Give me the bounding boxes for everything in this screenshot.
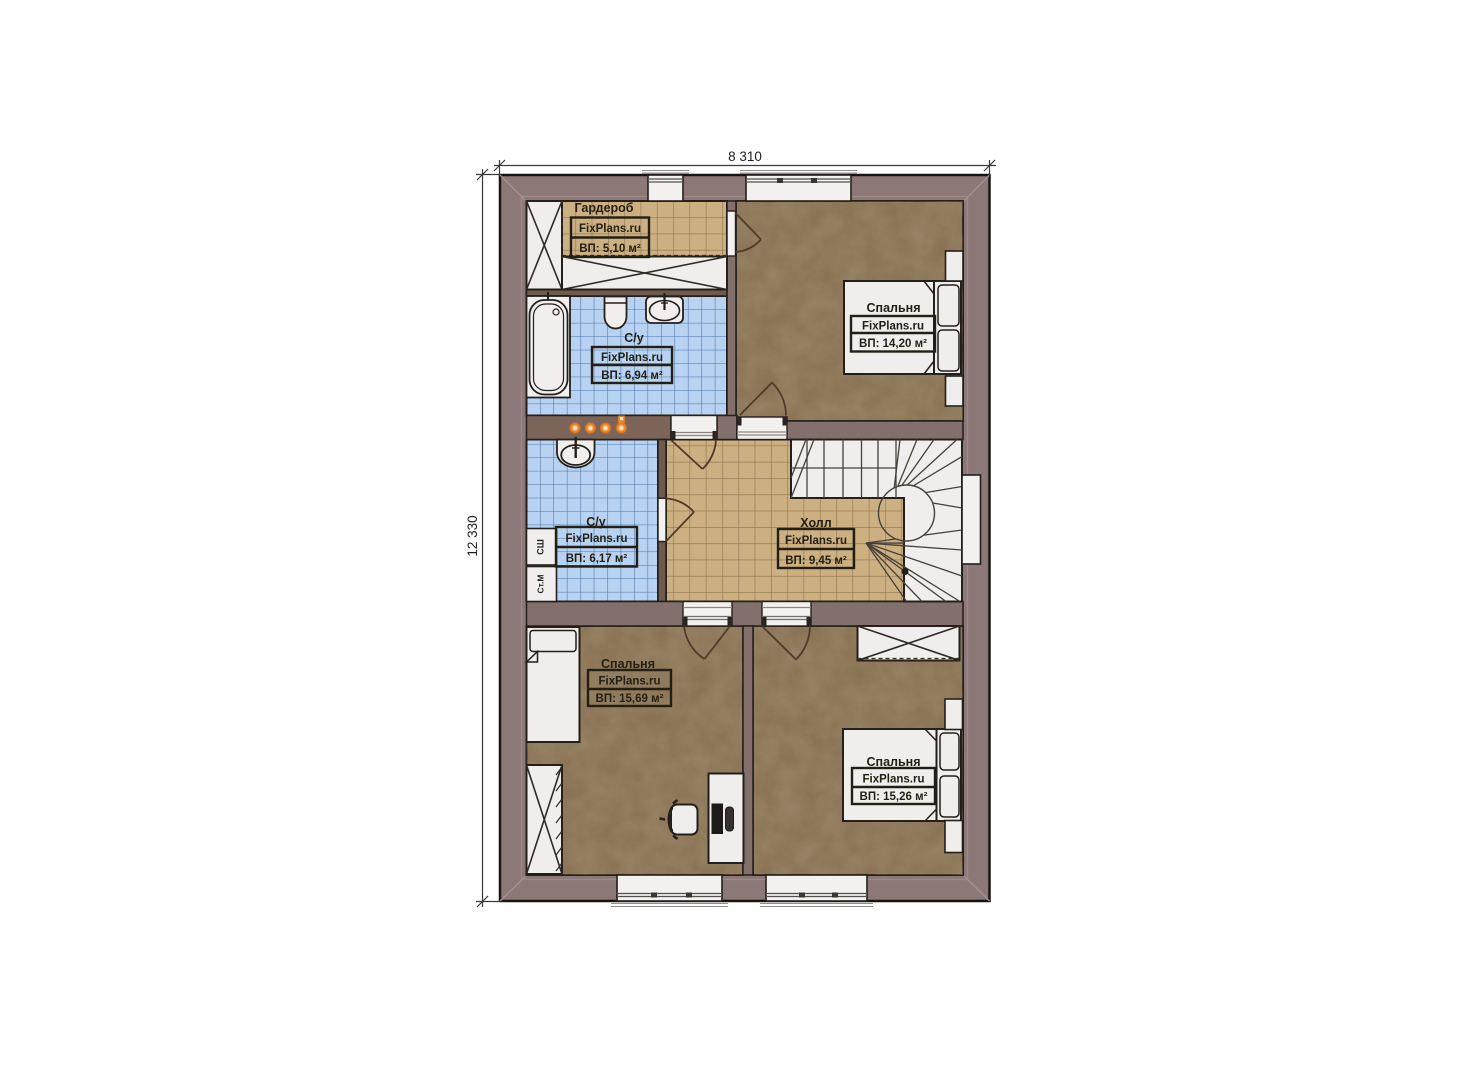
svg-text:FixPlans.ru: FixPlans.ru bbox=[566, 533, 628, 545]
svg-text:FixPlans.ru: FixPlans.ru bbox=[599, 676, 661, 688]
svg-text:ВП: 14,20 м²: ВП: 14,20 м² bbox=[859, 338, 927, 350]
svg-text:С/у: С/у bbox=[624, 331, 644, 345]
svg-text:FixPlans.ru: FixPlans.ru bbox=[785, 535, 847, 547]
svg-text:12 330: 12 330 bbox=[465, 515, 480, 556]
svg-text:Спальня: Спальня bbox=[867, 301, 921, 315]
svg-text:ВП: 9,45 м²: ВП: 9,45 м² bbox=[785, 555, 847, 567]
svg-text:ВП: 6,17 м²: ВП: 6,17 м² bbox=[566, 553, 628, 565]
svg-text:ВП: 15,69 м²: ВП: 15,69 м² bbox=[596, 693, 664, 705]
svg-text:Ст.М: Ст.М bbox=[535, 575, 545, 594]
svg-text:Гардероб: Гардероб bbox=[574, 201, 633, 215]
svg-text:8 310: 8 310 bbox=[728, 149, 762, 164]
svg-text:FixPlans.ru: FixPlans.ru bbox=[579, 223, 641, 235]
svg-text:СШ: СШ bbox=[535, 539, 545, 555]
svg-text:FixPlans.ru: FixPlans.ru bbox=[862, 321, 924, 333]
svg-text:ВП: 5,10 м²: ВП: 5,10 м² bbox=[579, 243, 641, 255]
svg-text:ВП: 15,26 м²: ВП: 15,26 м² bbox=[860, 791, 928, 803]
svg-text:FixPlans.ru: FixPlans.ru bbox=[601, 352, 663, 364]
svg-text:FixPlans.ru: FixPlans.ru bbox=[863, 774, 925, 786]
svg-text:ВП: 6,94 м²: ВП: 6,94 м² bbox=[601, 370, 663, 382]
